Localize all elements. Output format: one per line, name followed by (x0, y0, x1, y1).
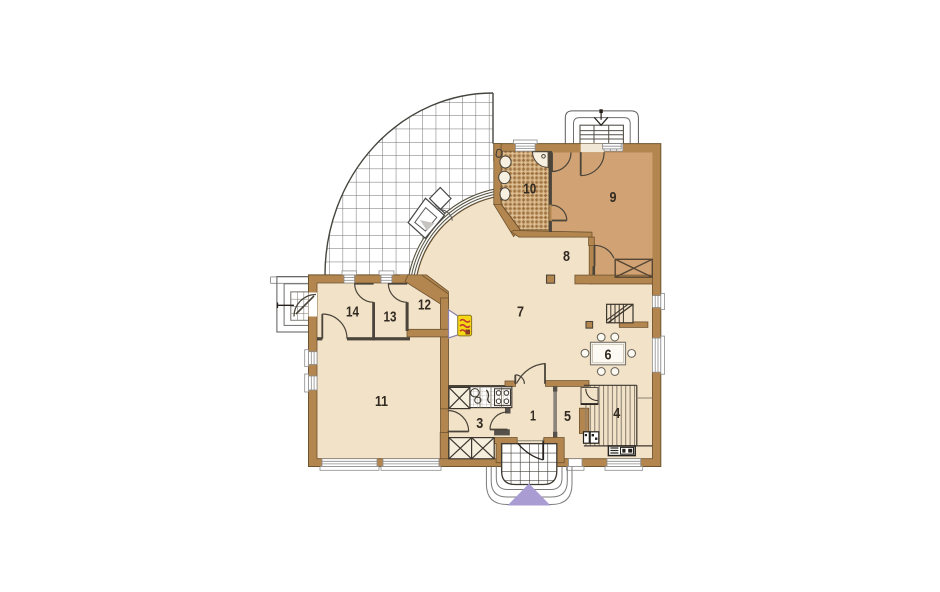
svg-text:8: 8 (563, 248, 570, 265)
svg-text:10: 10 (523, 181, 536, 198)
svg-text:7: 7 (517, 304, 524, 321)
svg-text:9: 9 (610, 189, 617, 206)
svg-text:5: 5 (564, 408, 571, 425)
svg-text:13: 13 (384, 309, 397, 326)
svg-text:1: 1 (530, 408, 536, 425)
svg-text:14: 14 (346, 304, 360, 321)
svg-text:11: 11 (375, 393, 388, 410)
svg-text:12: 12 (418, 297, 431, 314)
svg-text:3: 3 (476, 415, 483, 432)
svg-text:6: 6 (605, 347, 612, 364)
svg-text:4: 4 (613, 405, 621, 422)
